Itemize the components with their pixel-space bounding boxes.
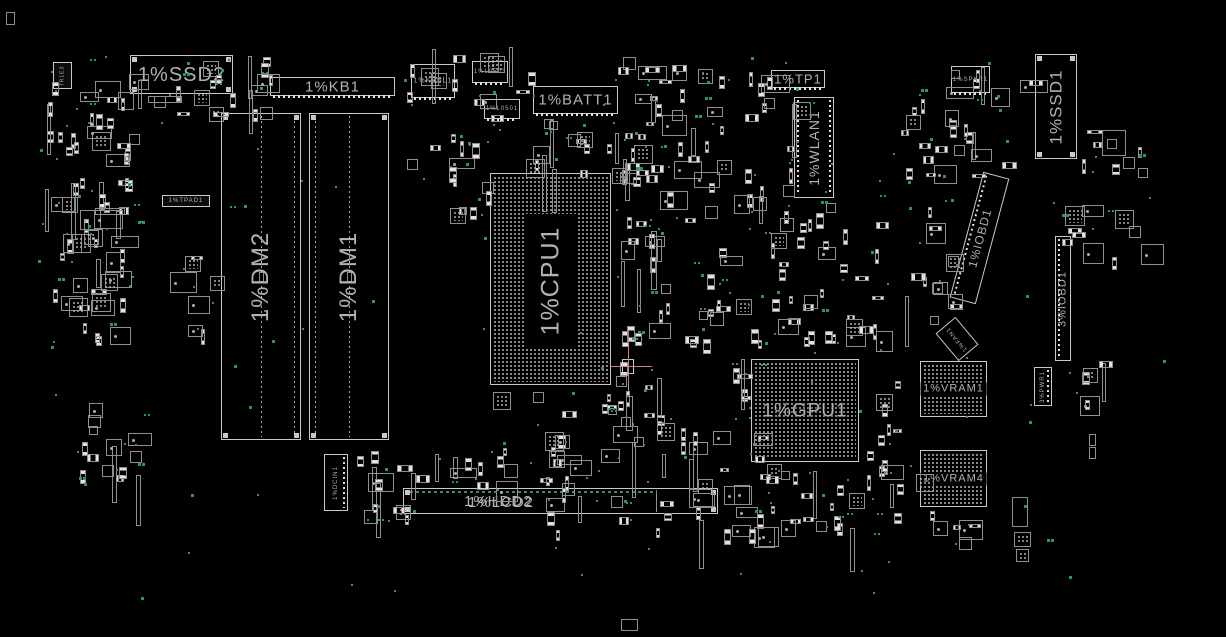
smd-chip [209,107,224,122]
test-point [698,262,700,264]
test-point [632,338,634,340]
smd-ic [635,94,652,104]
smd-part [95,208,125,215]
smd-part [1062,239,1073,246]
test-point [1143,154,1146,157]
smd-chip [407,159,418,170]
pad-row [273,95,392,98]
smd-part [867,475,871,491]
ic-pin1-dot [782,326,785,329]
smd-part [451,134,456,143]
test-point [144,414,146,416]
smd-part [453,55,466,63]
component-iobd1-3-connector[interactable]: 3%IOBD1 [1055,236,1071,361]
smd-part [486,191,492,206]
smd-part [656,528,660,538]
test-point [302,328,304,330]
component-dimm1-slot[interactable]: 1%DM1 [309,113,389,440]
smd-chip [616,376,627,387]
test-point [1163,360,1166,363]
test-point [132,276,134,278]
smd-part [895,381,901,389]
test-point [572,392,575,395]
test-point [655,291,658,294]
smd-part [1072,232,1086,238]
corner-pad [1070,56,1075,61]
test-point [636,167,639,170]
test-point [234,206,236,208]
smd-part [660,501,674,507]
smd-chip [710,312,724,326]
smd-part [875,249,879,264]
test-point [260,87,263,90]
smd-part [878,435,885,446]
test-point [197,328,199,330]
test-point [550,131,552,133]
smd-ic [106,439,122,456]
test-point [1108,210,1110,212]
smd-chip [260,107,273,120]
test-point [977,99,979,101]
test-point [141,597,144,600]
smd-part [797,237,805,249]
ic-pin1-dot [736,530,739,533]
test-point [76,108,78,110]
test-point [555,547,557,549]
smd-part [618,67,629,75]
smd-ic [720,256,743,266]
test-point [788,205,790,207]
test-point [58,278,61,281]
smd-part [430,145,441,151]
test-point [394,590,396,592]
smd-part [646,175,658,183]
test-point [964,138,966,140]
test-point [636,338,638,340]
test-point [378,519,380,521]
test-point [751,211,753,213]
smd-chip [954,145,965,156]
test-point [129,285,131,287]
teal-pin-row [410,491,657,493]
test-point [135,444,137,446]
test-point [110,323,113,326]
ic-pin1-dot [950,92,953,95]
smd-part [87,454,99,462]
smd-ic [971,149,992,162]
smd-ic [778,319,799,335]
test-point [705,97,708,100]
smd-chip [698,69,713,84]
test-point [702,328,705,331]
test-point [404,79,407,82]
test-point [726,279,728,281]
smd-part [912,107,917,116]
ic-pin1-dot [698,179,701,182]
test-point [878,533,880,535]
test-point [695,115,698,118]
smd-part [625,133,633,139]
test-point [789,162,791,164]
smd-part [107,118,114,129]
test-point [729,292,731,294]
smd-chip [102,465,114,477]
smd-part [646,122,654,126]
test-point [647,481,649,483]
smd-part [837,485,844,496]
test-point [56,158,58,160]
component-batt1-connector[interactable]: 1%BATT1 [533,86,618,114]
smd-part [645,385,653,390]
smd-part [921,99,925,114]
test-point [615,79,617,81]
ic-pin1-dot [762,536,765,539]
test-point [704,308,706,310]
test-point [759,510,762,513]
test-point [939,280,941,282]
smd-ic [1141,244,1164,265]
test-point [550,181,552,183]
test-point [469,144,471,146]
test-point [822,309,825,312]
smd-ic [761,75,790,93]
test-point [91,190,93,192]
test-point [187,62,190,65]
test-point [624,139,626,141]
test-point [367,519,369,521]
test-point [676,217,678,219]
test-point [664,145,667,148]
smd-ic [51,197,75,212]
bga-ball-grid [923,364,984,414]
test-point [770,502,772,504]
test-point [877,513,879,515]
test-point [639,305,641,307]
test-point [493,91,496,94]
smd-part [672,65,687,72]
smd-ic [106,252,121,273]
smd-part [681,428,686,441]
test-point [694,262,696,264]
smd-header [578,496,582,523]
test-point [871,251,874,254]
smd-part [976,70,980,83]
pad-row [475,82,505,85]
smd-chip [916,474,934,492]
component-iobd1-connector[interactable]: 1%IOBD1 [950,172,1010,305]
smd-ic [621,241,635,260]
smd-part [121,98,125,111]
test-point [1006,140,1009,143]
ic-pin1-dot [114,335,117,338]
test-point [1047,539,1050,542]
test-point [372,300,375,303]
test-point [460,135,463,138]
test-point [945,200,947,202]
smd-ic [724,486,752,505]
smd-part [1087,130,1103,134]
ic-pin1-dot [930,233,933,236]
qfn-pins [453,211,463,221]
qfn-pins [919,477,931,489]
smd-chip [611,496,623,508]
test-point [66,125,68,127]
smd-part [148,96,182,103]
smd-chip [781,471,790,480]
smd-part [894,513,902,524]
test-point [635,132,638,135]
component-dcin1-connector[interactable]: 1%DCIN1 [324,454,348,511]
test-point [728,79,730,81]
smd-part [644,413,655,418]
smd-part [897,484,904,495]
smd-part [696,507,701,520]
qfn-pins [95,296,108,309]
test-point [648,80,650,82]
test-point [650,219,652,221]
smd-part [60,253,65,261]
test-point [1062,214,1065,217]
test-point [796,88,799,91]
smd-part [766,476,779,484]
qfn-pins [774,236,784,246]
test-point [94,59,96,61]
smd-part [375,479,383,491]
component-note-label[interactable]: 1%TPAD1 [162,195,210,207]
smd-chip [657,423,675,441]
smd-part [678,142,683,157]
smd-chip [1083,368,1098,383]
test-point [880,195,882,197]
test-point [638,331,641,334]
test-point [861,570,863,572]
test-point [335,186,337,188]
test-point [749,417,751,419]
smd-header [905,296,909,347]
smd-chip [450,208,466,224]
test-point [1092,171,1094,173]
test-point [581,574,583,576]
smd-part [926,173,936,177]
test-point [388,520,390,522]
ic-pin1-dot [605,455,608,458]
ic-pin1-dot [110,447,113,450]
test-point [503,442,506,445]
smd-chip [549,121,558,130]
ic-pin1-dot [697,499,700,502]
test-point [613,122,615,124]
corner-pad [1037,152,1042,157]
smd-part [950,126,957,138]
smd-chip [488,56,505,73]
test-point [821,201,824,204]
test-point [624,500,627,503]
smd-part [859,326,874,334]
test-point [707,81,710,84]
test-point [257,148,259,150]
test-point [884,195,886,197]
smd-ic [707,107,723,117]
smd-part [651,165,664,173]
test-point [750,453,752,455]
ic-pin1-dot [937,288,940,291]
test-point [643,444,645,446]
test-point [83,477,86,480]
smd-chip [493,392,511,410]
test-point [749,228,751,230]
smd-header [691,128,696,156]
test-point [648,548,650,550]
test-point [873,592,875,594]
smd-part [371,451,379,464]
selection-crosshair-h [610,366,652,367]
smd-part [972,174,986,178]
component-dimm2-slot[interactable]: 1%DM2 [221,113,301,440]
test-point [55,394,57,396]
smd-part [887,424,891,436]
smd-chip [1138,168,1148,178]
smd-part [825,331,833,344]
smd-part [656,104,662,117]
smd-header [621,261,625,307]
corner-pad [132,57,137,62]
test-point [193,286,195,288]
smd-part [906,168,913,180]
smd-ic [694,172,720,188]
pad-row [1047,370,1049,403]
smd-part [547,512,555,526]
test-point [116,469,118,471]
ic-pin1-dot [624,178,627,181]
test-point [622,383,624,385]
corner-pad [382,433,387,438]
smd-part [556,530,560,541]
smd-part [607,394,611,402]
smd-ic [754,433,773,446]
smd-part [1014,532,1031,547]
ic-pin1-dot [110,160,113,163]
smd-part [719,76,725,89]
smd-part [52,82,59,96]
test-point [749,407,751,409]
qfn-pins [852,496,862,506]
test-point [1139,154,1142,157]
ic-pin1-dot [132,439,135,442]
smd-ic [689,442,708,455]
test-point [617,276,619,278]
smd-part [716,306,731,312]
smd-part [407,92,413,103]
smd-ic [758,527,779,547]
test-point [755,510,758,513]
smd-ic [601,449,620,463]
test-point [138,204,140,206]
test-point [847,513,849,515]
test-point [925,89,928,92]
smd-ic [1020,80,1048,93]
batt1-connector-label: 1%BATT1 [538,93,612,108]
qfn-pins [188,259,198,269]
smd-part [516,90,530,94]
test-point [919,94,921,96]
smd-header [248,56,252,99]
smd-part [491,115,504,122]
component-kb1-connector[interactable]: 1%KB1 [270,77,395,96]
smd-part [964,124,968,137]
test-point [565,441,567,443]
smd-part [919,143,931,149]
test-point [51,346,54,349]
ic-pin1-dot [653,330,656,333]
test-point [797,141,799,143]
test-point [661,146,663,148]
test-point [732,363,734,365]
test-point [791,159,793,161]
smd-header [662,454,666,478]
test-point [712,123,714,125]
test-point [1051,539,1054,542]
smd-chip [764,98,775,109]
smd-part [664,513,672,521]
test-point [943,175,946,178]
smd-part [823,241,829,250]
smd-part [191,256,203,260]
smd-part [562,488,566,503]
component-cpu1-bga[interactable]: 1%CPU1 [490,173,611,385]
smd-part [553,459,562,467]
test-point [765,232,767,234]
test-point [183,73,186,76]
corner-pad [226,87,231,92]
component-fan1-part[interactable]: 1%FAN1 [935,317,978,361]
smd-part [119,467,127,479]
smd-part [745,114,759,122]
test-point [670,418,672,420]
smd-part [724,529,731,545]
smd-ic [933,282,948,295]
component-gpu1-bga[interactable]: 1%GPU1 [751,359,859,462]
test-point [124,443,126,445]
test-point [879,180,881,182]
smd-ic [734,195,750,214]
test-point [491,451,493,453]
ic-pin1-dot [728,495,731,498]
ic-pin1-dot [133,81,136,84]
ic-pin1-dot [550,504,553,507]
smd-ic [660,191,688,210]
pad-row [953,175,987,295]
wlan1-slot-label: 1%WLAN1 [807,110,821,185]
ic-pin1-dot [1086,210,1089,213]
component-vram1-bga[interactable]: 1%VRAM1 [920,361,987,417]
board-canvas[interactable]: 1%SSD21%KB11%KBBL11%L05031%L05011%BATT11… [0,0,1226,637]
test-point [813,102,815,104]
ic-pin1-dot [885,472,888,475]
test-point [148,414,150,416]
test-point [811,381,813,383]
test-point [533,95,535,97]
smd-ic [73,278,88,293]
component-pwr1-connector[interactable]: 3%PWR1 [1034,367,1052,406]
corner-pad [382,115,387,120]
smd-ic [876,331,893,352]
smd-header [657,378,662,418]
component-ssd1-connector[interactable]: 1%SSD1 [1035,54,1077,159]
test-point [1112,210,1114,212]
test-point [702,72,704,74]
test-point [78,195,81,198]
test-point [187,73,190,76]
